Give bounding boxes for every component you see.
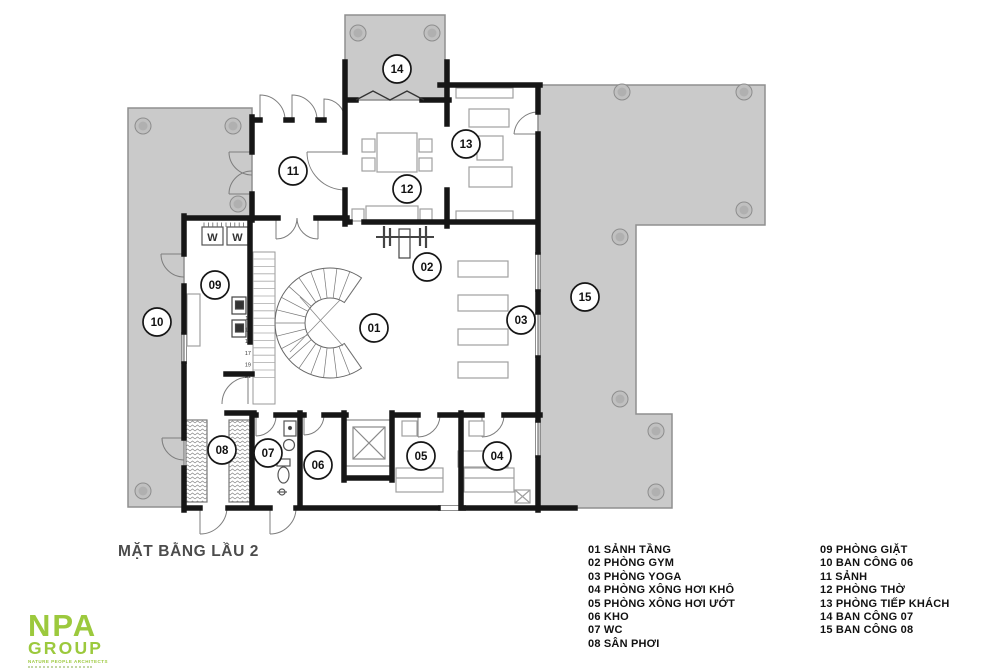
room-marker-04: 04 xyxy=(483,442,511,470)
room-marker-05: 05 xyxy=(407,442,435,470)
legend-item-01: 01 SẢNH TẦNG xyxy=(588,544,735,557)
column xyxy=(612,229,628,245)
gym-bench xyxy=(399,229,410,258)
logo-tagline: NATURE PEOPLE ARCHITECTS xyxy=(28,659,138,664)
logo-group-word: GROUP xyxy=(28,639,138,658)
npa-group-logo: NPA GROUP NATURE PEOPLE ARCHITECTS xyxy=(28,612,138,668)
column xyxy=(612,391,628,407)
stair-step-number: 17 xyxy=(245,351,251,357)
svg-text:03: 03 xyxy=(515,315,528,327)
column xyxy=(225,118,241,134)
page-title: MẶT BẰNG LẦU 2 xyxy=(118,543,259,561)
logo-rule xyxy=(28,666,92,668)
washer-labels: W W xyxy=(207,232,243,244)
svg-text:15: 15 xyxy=(579,292,592,304)
svg-text:10: 10 xyxy=(151,317,164,329)
svg-text:11: 11 xyxy=(287,166,300,178)
legend-item-05: 05 PHÒNG XÔNG HƠI ƯỚT xyxy=(588,598,735,611)
legend-item-11: 11 SẢNH xyxy=(820,571,950,584)
room-legend-column-2: 09 PHÒNG GIẶT10 BAN CÔNG 0611 SẢNH12 PHÒ… xyxy=(820,544,950,638)
column xyxy=(736,202,752,218)
svg-text:05: 05 xyxy=(415,451,428,463)
sauna-bench xyxy=(396,468,443,492)
column xyxy=(350,25,366,41)
svg-text:08: 08 xyxy=(216,445,229,457)
svg-text:07: 07 xyxy=(262,448,275,460)
sauna-bench xyxy=(464,468,514,492)
column xyxy=(230,196,246,212)
laundry-counter xyxy=(187,294,200,346)
room-marker-12: 12 xyxy=(393,175,421,203)
svg-text:09: 09 xyxy=(209,280,222,292)
sauna-heater xyxy=(402,421,417,436)
room-marker-11: 11 xyxy=(279,157,307,185)
room-marker-08: 08 xyxy=(208,436,236,464)
sink xyxy=(284,440,295,451)
column xyxy=(135,118,151,134)
room-marker-03: 03 xyxy=(507,306,535,334)
legend-item-15: 15 BAN CÔNG 08 xyxy=(820,624,950,637)
legend-item-10: 10 BAN CÔNG 06 xyxy=(820,557,950,570)
column xyxy=(135,483,151,499)
column xyxy=(614,84,630,100)
washer-label: W xyxy=(207,232,218,244)
legend-item-04: 04 PHÒNG XÔNG HƠI KHÔ xyxy=(588,584,735,597)
svg-text:02: 02 xyxy=(421,262,434,274)
legend-item-06: 06 KHO xyxy=(588,611,735,624)
stair-step-number: 19 xyxy=(245,362,251,368)
toilet-bowl xyxy=(278,467,289,483)
room-marker-02: 02 xyxy=(413,253,441,281)
legend-item-08: 08 SÂN PHƠI xyxy=(588,638,735,651)
svg-text:12: 12 xyxy=(401,184,414,196)
dining-table-set xyxy=(362,133,432,172)
sauna-heater xyxy=(469,421,484,436)
column xyxy=(648,423,664,439)
legend-item-02: 02 PHÒNG GYM xyxy=(588,557,735,570)
room-marker-10: 10 xyxy=(143,308,171,336)
room-marker-15: 15 xyxy=(571,283,599,311)
svg-text:04: 04 xyxy=(491,451,504,463)
svg-text:06: 06 xyxy=(312,460,325,472)
column xyxy=(424,25,440,41)
room-legend-column-1: 01 SẢNH TẦNG02 PHÒNG GYM03 PHÒNG YOGA04 … xyxy=(588,544,735,651)
column xyxy=(648,484,664,500)
legend-item-12: 12 PHÒNG THỜ xyxy=(820,584,950,597)
elevator-shaft xyxy=(346,420,392,466)
room-marker-01: 01 xyxy=(360,314,388,342)
legend-item-09: 09 PHÒNG GIẶT xyxy=(820,544,950,557)
svg-text:01: 01 xyxy=(368,323,381,335)
legend-item-13: 13 PHÒNG TIẾP KHÁCH xyxy=(820,598,950,611)
svg-text:13: 13 xyxy=(460,139,473,151)
room-marker-14: 14 xyxy=(383,55,411,83)
legend-item-07: 07 WC xyxy=(588,624,735,637)
spiral-staircase xyxy=(275,268,362,378)
svg-text:14: 14 xyxy=(391,64,404,76)
column xyxy=(736,84,752,100)
vent-grille xyxy=(204,223,244,228)
washer-label: W xyxy=(232,232,243,244)
legend-item-03: 03 PHÒNG YOGA xyxy=(588,571,735,584)
room-marker-07: 07 xyxy=(254,439,282,467)
room-marker-09: 09 xyxy=(201,271,229,299)
floorplan-sheet: 13579111315171921 W W 010203040506070809… xyxy=(0,0,1000,670)
room-marker-13: 13 xyxy=(452,130,480,158)
logo-name: NPA xyxy=(28,612,138,639)
room-marker-06: 06 xyxy=(304,451,332,479)
legend-item-14: 14 BAN CÔNG 07 xyxy=(820,611,950,624)
